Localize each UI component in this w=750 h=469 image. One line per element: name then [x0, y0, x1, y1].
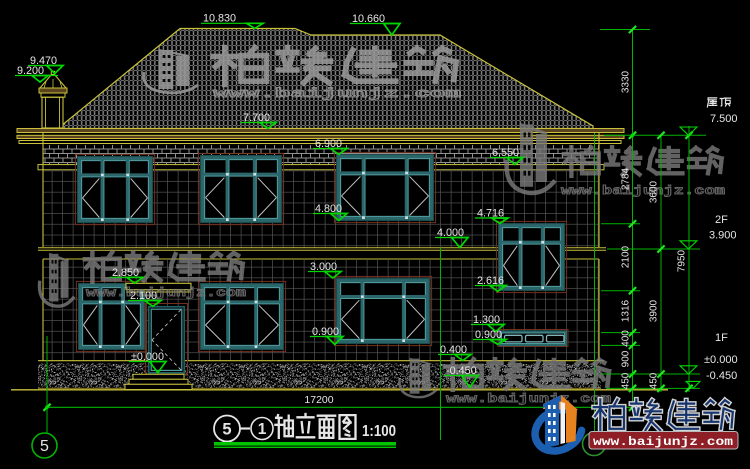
svg-text:www.baijunjz.com: www.baijunjz.com — [213, 86, 461, 101]
svg-text:5: 5 — [40, 438, 49, 455]
svg-text:450: 450 — [649, 372, 660, 389]
svg-text:2784: 2784 — [621, 167, 632, 190]
svg-text:5: 5 — [222, 421, 231, 439]
svg-text:3900: 3900 — [649, 299, 660, 322]
svg-text:2100: 2100 — [621, 245, 632, 268]
svg-text:7.500: 7.500 — [710, 113, 738, 125]
svg-text:www.baijunjz.com: www.baijunjz.com — [593, 435, 733, 449]
svg-text:3600: 3600 — [649, 180, 660, 203]
svg-text:400: 400 — [621, 330, 632, 347]
svg-text:3330: 3330 — [621, 70, 632, 93]
svg-text:www.baijunjz.com: www.baijunjz.com — [446, 392, 611, 406]
svg-text:17200: 17200 — [304, 394, 333, 406]
svg-text:7950: 7950 — [677, 249, 688, 272]
svg-text:900: 900 — [621, 350, 632, 367]
svg-text:450: 450 — [621, 372, 632, 389]
svg-text:www.baijunjz.com: www.baijunjz.com — [561, 184, 725, 198]
svg-text:2F: 2F — [715, 214, 728, 226]
svg-text:-0.450: -0.450 — [706, 370, 737, 382]
svg-text:www.baijunjz.com: www.baijunjz.com — [86, 286, 246, 300]
svg-text:1316: 1316 — [621, 299, 632, 322]
svg-text:1F: 1F — [715, 332, 728, 344]
svg-text:3.900: 3.900 — [709, 230, 737, 242]
svg-text:1:100: 1:100 — [362, 423, 396, 440]
svg-text:1: 1 — [258, 421, 267, 438]
svg-text:±0.000: ±0.000 — [704, 354, 738, 366]
